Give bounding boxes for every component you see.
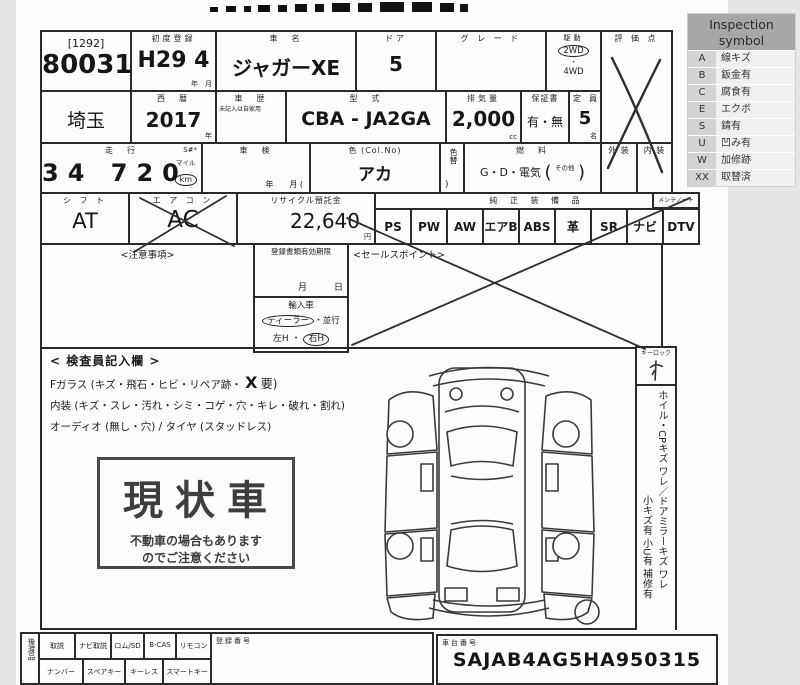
warranty-label: 保証書 [522,92,568,104]
inspector-line1-x-mark: X [245,373,257,392]
equipment-item-dtv: DTV [662,210,698,243]
interior-label: 内 装 [638,144,671,156]
model-code-cell: 型 式 CBA - JA2GA [285,90,447,144]
inspector-title: < 検査員記入欄 > [50,352,345,369]
inspector-line3: オーディオ (無し・穴) / タイヤ (スタッドレス) [50,419,345,434]
import-parallel: ・並行 [314,316,340,326]
equipment-block: 純 正 装 備 品 メンテノート PS PW AW エアB ABS 革 SR ナ… [374,192,700,245]
legend-row-u: U凹み有 [688,135,795,152]
equipment-item-abs: ABS [518,210,554,243]
handover-cell-remote: リモコン [175,632,212,660]
sales-point-label: <セールスポイント> [349,245,661,261]
stamp-sub1: 不動車の場合もあります [100,532,292,549]
equipment-label: 純 正 装 備 品 [376,194,698,206]
capacity-value: 5 [570,108,600,129]
fuel-other: その他 [555,164,575,172]
legend-label: 錆有 [716,119,795,135]
car-diagram [367,354,612,628]
registration-number-cell: 登録番号 [210,632,434,685]
handover-cell-bcas: B-CAS [143,632,177,660]
mileage-unit-mile: マイル [175,157,197,167]
shift-value: AT [42,209,128,233]
prefecture-cell: 埼玉 [40,90,132,144]
color-label: 色 (Col.No) [311,144,439,156]
warranty-value: 有・無 [522,113,568,130]
color-cell: 色 (Col.No) アカ [309,142,441,194]
equipment-item-aw: AW [446,210,482,243]
legend-row-b: B鈑金有 [688,67,795,84]
side-column-border [675,384,677,630]
docs-deadline-label: 登録書類有効期限 [255,245,347,257]
inspection-area-box: < 検査員記入欄 > Fガラス (キズ・飛石・ヒビ・リペア跡・ X 要) 内装 … [40,347,637,630]
notes-box: <注意事項> [40,243,255,349]
keylock-handwritten-mark [647,358,665,382]
mileage-s-mark: S#* [183,146,197,154]
legend-row-e: Eエクボ [688,101,795,118]
genjosha-stamp: 現状車 不動車の場合もあります のでご注意ください [97,457,295,569]
aircon-label: エ ア コ ン [130,194,236,206]
fuel-open-paren: ( [544,162,551,183]
legend-label: エクボ [716,102,795,118]
shift-cell: シ フ ト AT [40,192,130,245]
stamp-main-text: 現状車 [110,468,292,526]
auction-lot-no: 80031 [42,50,130,80]
color-change-cell: 色替 ) [439,142,465,194]
car-history-label: 車 歴 [217,92,285,104]
car-name-label: 車 名 [217,32,355,44]
equipment-items-row: PS PW AW エアB ABS 革 SR ナビ DTV [376,208,698,243]
mileage-cell: 走 行 S#* 34 720 マイル km [40,142,203,194]
car-history-cell: 車 歴 未記入は自家用 [215,90,287,144]
recycle-fee-cell: リサイクル預託金 22,640 円 [236,192,376,245]
first-registration-value: H29 4 [132,48,215,73]
displacement-unit: cc [509,133,517,141]
handover-manual-label: 取説 [40,641,74,651]
legend-symbol: U [688,136,716,152]
drive-dot: ・ [547,57,600,67]
handover-number-plate-label: ナンバー [40,667,82,677]
keylock-box: キーロック [635,346,677,386]
import-left-h: 左H [273,334,289,344]
handover-rom-sd-label: ロム/SD [112,641,143,651]
legend-label: 線キズ [716,51,795,67]
warranty-cell: 保証書 有・無 [520,90,570,144]
capacity-cell: 定 員 5 名 [568,90,602,144]
drive-type-cell: 駆動 2WD ・ 4WD [545,30,602,92]
mileage-value: 34 720 [42,159,173,187]
car-name-value: ジャガーXE [217,52,355,81]
side-note-wheel-mirror: ホイル・CPキズ ワレ／ドアミラーキズ ワレ [654,390,670,630]
vin-label: 車台番号 [438,636,716,648]
displacement-label: 排気量 [447,92,520,104]
first-registration-cell: 初度登録 H29 4 年 月 [130,30,217,92]
recycle-fee-label: リサイクル預託金 [238,194,374,206]
mileage-units: マイル km [175,157,197,186]
score-label: 評 価 点 [602,32,671,44]
equipment-item-navi: ナビ [626,210,662,243]
handover-cell-keyless: キーレス [124,658,164,685]
stamp-sub2: のでご注意ください [100,549,292,566]
inspection-symbol-legend: Inspection symbol A線キズ B鈑金有 C腐食有 Eエクボ S錆… [688,14,795,186]
notes-box-label: <注意事項> [42,245,253,261]
car-name-cell: 車 名 ジャガーXE [215,30,357,92]
handover-bcas-label: B-CAS [145,641,175,649]
capacity-unit: 名 [590,131,597,141]
fuel-value: G・D・電気 [480,166,541,179]
legend-row-s: S錆有 [688,118,795,135]
grade-cell: グ レ ー ド [435,30,547,92]
sales-point-box: <セールスポイント> [347,243,663,349]
legend-symbol: E [688,102,716,118]
handover-label-cell: 後渡品 [20,632,40,685]
western-year-cell: 西 暦 2017 年 [130,90,217,144]
auction-sheet-screen: [1292] 80031 初度登録 H29 4 年 月 車 名 ジャガーXE ド… [0,0,800,685]
equipment-item-leather: 革 [554,210,590,243]
legend-label: 腐食有 [716,85,795,101]
inspector-notes: < 検査員記入欄 > Fガラス (キズ・飛石・ヒビ・リペア跡・ X 要) 内装 … [50,352,345,434]
model-code-value: CBA - JA2GA [287,108,445,130]
fuel-value-line: G・D・電気 ( その他 ) [465,162,600,183]
mileage-label: 走 行 [42,144,201,156]
import-dealer-circled: ディーラー [262,315,314,327]
legend-symbol: C [688,85,716,101]
equipment-item-airbag: エアB [482,210,518,243]
drive-2wd-circled: 2WD [547,45,600,57]
shaken-label: 車 検 [203,144,309,156]
handover-navi-manual-label: ナビ取説 [76,641,110,651]
first-registration-unit: 年 月 [191,79,212,89]
legend-row-a: A線キズ [688,50,795,67]
vin-box: 車台番号 SAJAB4AG5HA950315 [436,634,718,685]
prefecture-value: 埼玉 [42,106,130,133]
exterior-grade-cell: 外 装 [600,142,638,194]
import-handle-line: 左H ・ 右H [255,331,347,346]
shift-label: シ フ ト [42,194,128,206]
drive-label: 駆動 [547,32,600,43]
inspector-line1-prefix: Fガラス (キズ・飛石・ヒビ・リペア跡・ [50,379,242,391]
first-registration-label: 初度登録 [132,32,215,44]
handover-remote-label: リモコン [177,641,210,651]
western-year-label: 西 暦 [132,92,215,104]
legend-symbol: S [688,119,716,135]
handover-cell-rom-sd: ロム/SD [110,632,145,660]
legend-label: 加修跡 [716,153,795,169]
legend-label: 凹み有 [716,136,795,152]
legend-row-w: W加修跡 [688,152,795,169]
inspector-line1-suffix: 要) [261,377,278,391]
door-value: 5 [357,52,435,76]
equipment-item-sr: SR [590,210,626,243]
keylock-label: キーロック [637,348,675,357]
equipment-note: メンテノート [652,194,698,209]
inspector-line1: Fガラス (キズ・飛石・ヒビ・リペア跡・ X 要) [50,373,345,392]
interior-grade-cell: 内 装 [636,142,673,194]
recycle-fee-unit: 円 [364,232,371,242]
legend-label: 鈑金有 [716,68,795,84]
legend-symbol: A [688,51,716,67]
model-code-label: 型 式 [287,92,445,104]
import-box: 輸入車 ディーラー・並行 左H ・ 右H [253,296,349,353]
score-cell: 評 価 点 [600,30,673,144]
import-label: 輸入車 [255,298,347,311]
vin-value: SAJAB4AG5HA950315 [438,649,716,671]
car-history-note: 未記入は自家用 [217,104,285,113]
recycle-fee-value: 22,640 [238,209,374,233]
equipment-item-ps: PS [376,210,410,243]
handover-cell-number-plate: ナンバー [38,658,84,685]
capacity-label: 定 員 [570,92,600,104]
legend-row-xx: XX取替済 [688,169,795,186]
side-note-small-scratch: 小キズ有 小U有 補修有 [638,390,654,630]
legend-symbol: B [688,68,716,84]
grade-label: グ レ ー ド [437,32,545,44]
docs-deadline-box: 登録書類有効期限 月 日 [253,243,349,298]
auction-number-cell: [1292] 80031 [40,30,132,92]
displacement-cell: 排気量 2,000 cc [445,90,522,144]
fuel-close-paren: ) [578,162,585,183]
legend-title: Inspection symbol [688,14,795,50]
displacement-value: 2,000 [447,107,520,131]
handover-smart-key-label: スマートキー [164,667,210,677]
mileage-unit-km-circled: km [175,174,197,186]
handover-cell-spare-key: スペアキー [82,658,126,685]
docs-deadline-unit: 月 日 [255,280,343,293]
door-cell: ドア 5 [355,30,437,92]
color-change-label: 色替 [448,148,459,164]
handover-cell-smart-key: スマートキー [162,658,212,685]
exterior-label: 外 装 [602,144,636,156]
legend-symbol: XX [688,170,716,186]
handover-label: 後渡品 [26,638,37,661]
registration-number-label: 登録番号 [212,634,432,646]
drive-4wd: 4WD [547,67,600,77]
legend-row-c: C腐食有 [688,84,795,101]
import-dealer-line: ディーラー・並行 [255,314,347,327]
handover-spare-key-label: スペアキー [84,667,124,677]
import-handle-dot: ・ [291,334,300,344]
legend-symbol: W [688,153,716,169]
color-value: アカ [311,160,439,185]
western-year-unit: 年 [205,131,212,141]
shaken-cell: 車 検 年 月 ( [201,142,311,194]
handover-keyless-label: キーレス [126,667,162,677]
side-vertical-notes: ホイル・CPキズ ワレ／ドアミラーキズ ワレ 小キズ有 小U有 補修有 [638,390,669,630]
aircon-cell: エ ア コ ン AC [128,192,238,245]
aircon-value: AC [130,207,236,233]
western-year-value: 2017 [132,108,215,132]
fuel-label: 燃 料 [465,144,600,156]
handover-cell-navi-manual: ナビ取説 [74,632,112,660]
legend-label: 取替済 [716,170,795,186]
fuel-cell: 燃 料 G・D・電気 ( その他 ) [463,142,602,194]
color-change-paren: ) [445,180,449,190]
auction-bracket-no: [1292] [42,37,130,50]
inspector-line2: 内装 (キズ・スレ・汚れ・シミ・コゲ・穴・キレ・破れ・割れ) [50,398,345,413]
equipment-item-pw: PW [410,210,446,243]
shaken-unit: 年 月 ( [265,179,303,190]
handover-cell-manual: 取説 [38,632,76,660]
door-label: ドア [357,32,435,44]
import-right-h-circled: 右H [303,333,329,346]
